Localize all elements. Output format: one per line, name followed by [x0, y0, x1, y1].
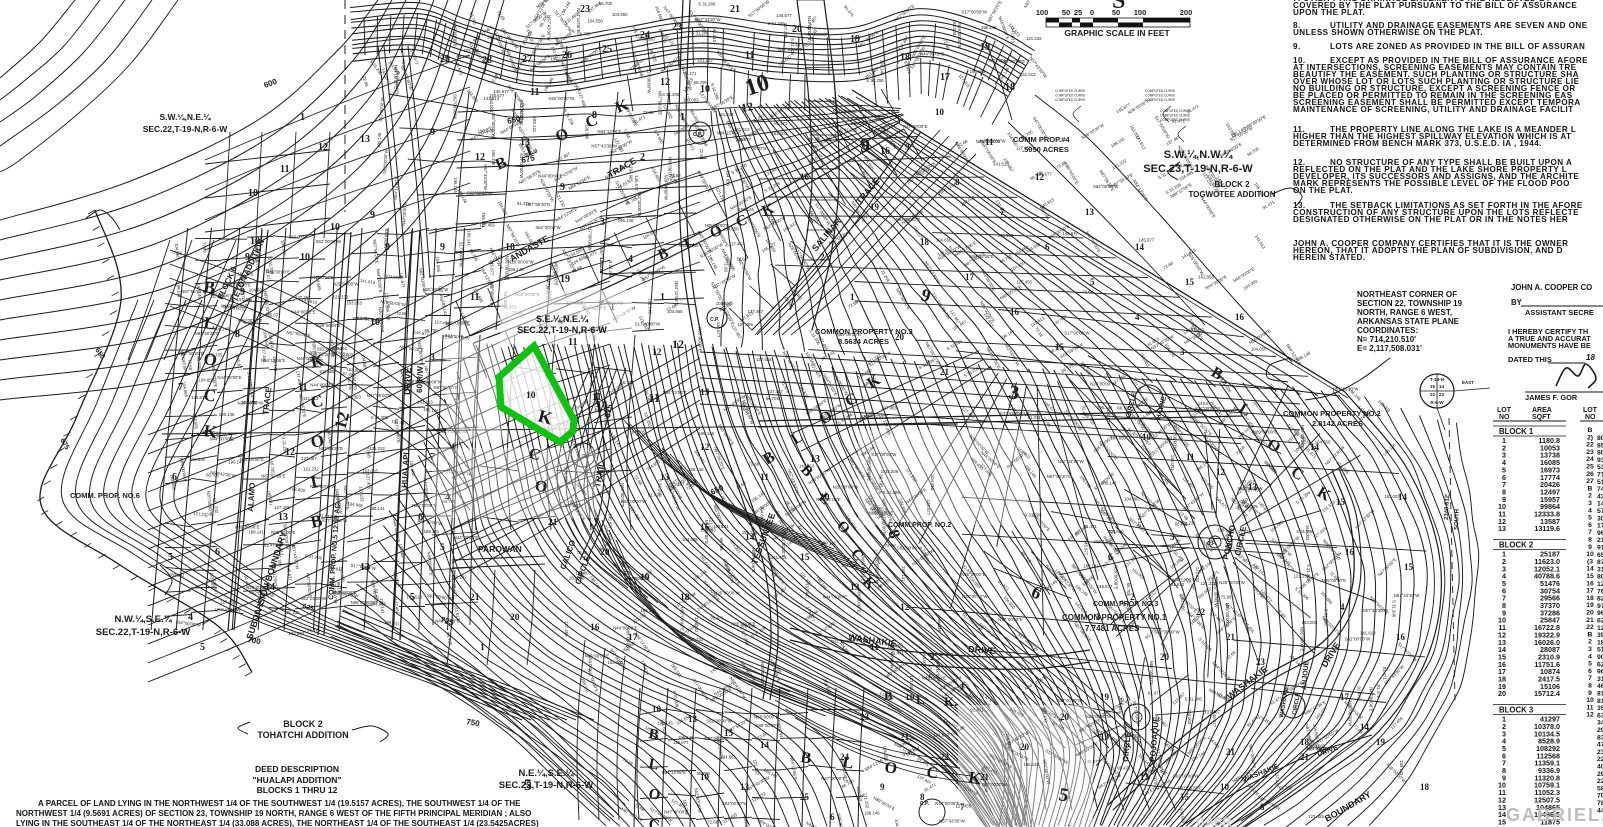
svg-text:14: 14 — [1398, 492, 1408, 502]
svg-text:S 31.206: S 31.206 — [698, 1, 716, 6]
svg-text:N47°00'00"E: N47°00'00"E — [903, 124, 928, 129]
svg-text:S62°00'00"W: S62°00'00"W — [1057, 698, 1083, 703]
svg-text:N= 714,210.510': N= 714,210.510' — [1357, 335, 1416, 344]
svg-text:145.677: 145.677 — [673, 740, 689, 745]
svg-text:9: 9 — [880, 782, 885, 792]
svg-text:N87°56'20"E: N87°56'20"E — [1178, 786, 1203, 791]
svg-text:12: 12 — [652, 348, 662, 358]
svg-text:71: 71 — [1597, 472, 1603, 479]
svg-text:N89°00'00"E: N89°00'00"E — [922, 676, 947, 681]
svg-text:N89°00'00"E: N89°00'00"E — [760, 662, 765, 687]
svg-text:3: 3 — [1588, 500, 1592, 507]
svg-text:9.: 9. — [1293, 42, 1301, 51]
svg-text:S 31.206: S 31.206 — [608, 261, 613, 279]
svg-text:N57°43'30"W: N57°43'30"W — [1058, 459, 1085, 464]
svg-text:DRIVE: DRIVE — [968, 644, 996, 656]
svg-text:163.003: 163.003 — [289, 235, 305, 240]
svg-text:104.650: 104.650 — [726, 170, 731, 186]
svg-text:LOT: LOT — [1497, 407, 1512, 414]
svg-text:9: 9 — [560, 182, 565, 193]
svg-text:SEC.23,T-19-N,R-6-W: SEC.23,T-19-N,R-6-W — [1143, 163, 1253, 175]
svg-text:21: 21 — [470, 593, 480, 603]
svg-text:S62°00'00"W: S62°00'00"W — [316, 239, 342, 244]
svg-text:57: 57 — [1597, 508, 1603, 515]
svg-text:196.146: 196.146 — [219, 412, 235, 417]
svg-text:S 31.206: S 31.206 — [883, 490, 901, 495]
svg-text:21: 21 — [1597, 537, 1603, 544]
svg-text:66.705: 66.705 — [577, 31, 591, 36]
svg-text:141.613: 141.613 — [1169, 582, 1185, 587]
svg-text:72.68: 72.68 — [707, 820, 718, 825]
svg-text:17: 17 — [1340, 692, 1350, 702]
svg-text:163.003: 163.003 — [700, 527, 716, 532]
svg-text:SQFT: SQFT — [1532, 414, 1551, 421]
svg-text:43: 43 — [1597, 493, 1603, 500]
svg-text:17: 17 — [1586, 588, 1594, 595]
svg-text:S17°00'00"W: S17°00'00"W — [962, 9, 988, 14]
svg-text:163.003: 163.003 — [575, 570, 591, 575]
svg-text:24: 24 — [1586, 456, 1594, 463]
svg-text:COMPUTED CURVE: COMPUTED CURVE — [1160, 114, 1190, 118]
svg-text:163.003: 163.003 — [346, 301, 362, 306]
svg-text:74: 74 — [1597, 486, 1603, 493]
svg-text:O: O — [202, 349, 218, 370]
svg-text:163.003: 163.003 — [489, 97, 494, 113]
svg-text:104.650: 104.650 — [887, 644, 903, 649]
svg-text:3: 3 — [1588, 646, 1592, 653]
svg-text:11: 11 — [530, 87, 539, 98]
svg-text:189.141: 189.141 — [1083, 564, 1099, 569]
svg-text:N85°00'00"E: N85°00'00"E — [961, 572, 986, 577]
svg-text:COMPUTED CURVE: COMPUTED CURVE — [1055, 94, 1085, 98]
svg-text:S62°00'00"W: S62°00'00"W — [706, 719, 732, 724]
svg-text:11: 11 — [594, 398, 610, 416]
svg-text:6: 6 — [418, 512, 423, 523]
svg-text:8: 8 — [1260, 802, 1265, 812]
svg-text:BLOCKS 1 THRU 12: BLOCKS 1 THRU 12 — [257, 785, 338, 795]
svg-text:S 31.206: S 31.206 — [1181, 593, 1186, 611]
svg-text:S17°00'00"W: S17°00'00"W — [587, 225, 592, 251]
svg-text:14: 14 — [1597, 501, 1603, 508]
svg-text:47: 47 — [1597, 742, 1603, 749]
svg-text:N87°56'20"E: N87°56'20"E — [261, 473, 286, 478]
svg-text:N47°00'00"E: N47°00'00"E — [778, 47, 803, 52]
svg-text:HUALAPI: HUALAPI — [400, 452, 411, 488]
svg-text:196.146: 196.146 — [699, 431, 715, 436]
svg-text:141.613: 141.613 — [934, 733, 950, 738]
svg-text:11: 11 — [280, 164, 289, 175]
svg-text:11: 11 — [985, 137, 994, 147]
svg-text:18: 18 — [1597, 639, 1603, 646]
svg-text:S 31.206: S 31.206 — [691, 30, 709, 35]
svg-text:76: 76 — [1597, 588, 1603, 595]
svg-text:127.455: 127.455 — [881, 406, 897, 411]
svg-text:104.665: 104.665 — [841, 563, 857, 568]
svg-text:UPON THE PLAT.: UPON THE PLAT. — [1293, 8, 1365, 17]
svg-text:S62°00'00"W: S62°00'00"W — [722, 801, 748, 806]
svg-text:19: 19 — [1586, 602, 1594, 609]
svg-text:66.705: 66.705 — [694, 80, 708, 85]
svg-text:40: 40 — [1597, 764, 1603, 771]
svg-text:N26°00'00"W: N26°00'00"W — [962, 594, 989, 599]
svg-text:N85°00'00"E: N85°00'00"E — [1322, 578, 1347, 583]
svg-text:COMPUTED CURVE: COMPUTED CURVE — [1145, 89, 1175, 93]
svg-text:11: 11 — [648, 390, 660, 405]
svg-text:S.W.¼,N.W.¼: S.W.¼,N.W.¼ — [1164, 149, 1233, 161]
svg-text:121.232: 121.232 — [369, 446, 385, 451]
svg-text:189.141: 189.141 — [248, 529, 264, 534]
svg-text:145.677: 145.677 — [1106, 409, 1111, 425]
svg-text:.5050 ACRES: .5050 ACRES — [1022, 145, 1069, 154]
svg-text:121.232: 121.232 — [1180, 520, 1196, 525]
svg-text:16: 16 — [1396, 632, 1406, 642]
svg-text:145.677: 145.677 — [926, 500, 931, 516]
svg-text:S 31.206: S 31.206 — [662, 92, 680, 97]
svg-text:N84°12'06"E: N84°12'06"E — [751, 548, 756, 573]
svg-text:AREA: AREA — [1532, 407, 1552, 414]
svg-text:66.705: 66.705 — [766, 396, 780, 401]
svg-text:104.650: 104.650 — [587, 19, 603, 24]
svg-text:S62°00'00"W: S62°00'00"W — [1093, 184, 1119, 189]
svg-text:"HUALAPI ADDITION": "HUALAPI ADDITION" — [253, 775, 342, 785]
svg-text:66.705: 66.705 — [719, 538, 724, 552]
svg-text:12: 12 — [1586, 712, 1594, 719]
svg-text:141.613: 141.613 — [993, 161, 1009, 166]
svg-text:8.5634 ACRES: 8.5634 ACRES — [838, 337, 889, 346]
svg-text:N89°00'00"E: N89°00'00"E — [856, 588, 861, 613]
svg-text:10: 10 — [370, 317, 380, 328]
svg-text:5: 5 — [1588, 515, 1592, 522]
svg-text:60 R/W: 60 R/W — [415, 366, 425, 393]
svg-text:TOGWOTEE ADDITION: TOGWOTEE ADDITION — [1188, 190, 1275, 199]
svg-text:S62°00'00"W: S62°00'00"W — [1154, 630, 1180, 635]
svg-text:25: 25 — [602, 44, 612, 55]
svg-text:N57°43'30"W: N57°43'30"W — [599, 248, 604, 275]
svg-text:16: 16 — [1010, 307, 1020, 317]
svg-text:BY: BY — [1511, 298, 1523, 307]
svg-text:196.146: 196.146 — [981, 25, 997, 30]
svg-text:121.232: 121.232 — [333, 295, 349, 300]
svg-text:13: 13 — [1498, 524, 1506, 533]
svg-text:96: 96 — [1597, 669, 1603, 676]
svg-text:1: 1 — [660, 292, 665, 303]
svg-text:72.68: 72.68 — [1221, 595, 1232, 600]
svg-text:196.146: 196.146 — [508, 267, 524, 272]
svg-text:163.003: 163.003 — [1305, 525, 1310, 541]
svg-text:12: 12 — [1597, 625, 1603, 632]
svg-text:4: 4 — [188, 612, 193, 623]
svg-text:91.471: 91.471 — [1238, 530, 1252, 535]
svg-text:S17°00'00"W: S17°00'00"W — [871, 452, 897, 457]
svg-text:196.146: 196.146 — [879, 60, 884, 76]
svg-text:127.455: 127.455 — [756, 357, 772, 362]
svg-text:23: 23 — [860, 712, 870, 722]
svg-text:163.003: 163.003 — [922, 652, 927, 668]
svg-text:104.650: 104.650 — [723, 226, 739, 231]
svg-text:11: 11 — [745, 50, 754, 61]
svg-text:8: 8 — [1588, 537, 1592, 544]
svg-text:COMPUTED CURVE: COMPUTED CURVE — [1055, 89, 1085, 93]
svg-text:72.68: 72.68 — [401, 59, 407, 70]
svg-text:N26°00'00"W: N26°00'00"W — [549, 96, 576, 101]
svg-text:N87°56'20"E: N87°56'20"E — [816, 497, 841, 502]
svg-text:15: 15 — [1055, 342, 1065, 352]
svg-text:16: 16 — [1235, 312, 1245, 322]
svg-text:137.467: 137.467 — [767, 389, 783, 394]
svg-text:10: 10 — [1586, 551, 1594, 558]
svg-text:NO: NO — [1585, 414, 1596, 421]
svg-text:15 | 14: 15 | 14 — [1430, 384, 1445, 389]
svg-text:6: 6 — [1588, 522, 1592, 529]
svg-text:21: 21 — [940, 367, 950, 377]
svg-text:(3: (3 — [1587, 558, 1593, 565]
svg-text:27: 27 — [1586, 478, 1594, 485]
svg-text:16: 16 — [1345, 547, 1355, 557]
svg-text:80: 80 — [1597, 435, 1603, 442]
svg-text:4: 4 — [1588, 653, 1592, 660]
svg-text:10: 10 — [1586, 697, 1594, 704]
svg-text:31: 31 — [1597, 566, 1603, 573]
svg-text:DATED THIS: DATED THIS — [1508, 355, 1552, 364]
svg-text:12: 12 — [1216, 467, 1226, 477]
svg-text:104.650: 104.650 — [1108, 529, 1124, 534]
svg-text:5: 5 — [1090, 277, 1095, 287]
svg-text:145.677: 145.677 — [634, 175, 639, 191]
svg-text:9: 9 — [440, 242, 445, 253]
svg-text:SECTION 22, TOWNSHIP 19: SECTION 22, TOWNSHIP 19 — [1357, 299, 1463, 308]
svg-text:137.467: 137.467 — [1188, 328, 1204, 333]
svg-text:189.141: 189.141 — [901, 566, 906, 582]
svg-text:GRAPHIC SCALE IN FEET: GRAPHIC SCALE IN FEET — [1064, 28, 1170, 38]
svg-text:21: 21 — [548, 518, 558, 528]
svg-text:15: 15 — [800, 553, 810, 563]
svg-text:N57°43'30"W: N57°43'30"W — [591, 143, 618, 148]
svg-text:N87°56'20"E: N87°56'20"E — [179, 351, 204, 356]
svg-text:LOT: LOT — [1583, 407, 1598, 414]
svg-text:N44°00'00"E: N44°00'00"E — [310, 383, 335, 388]
svg-text:12: 12 — [285, 447, 295, 458]
svg-text:S62°00'00"W: S62°00'00"W — [453, 94, 458, 120]
svg-text:16: 16 — [800, 172, 810, 182]
svg-text:39: 39 — [1597, 632, 1603, 639]
svg-text:66.705: 66.705 — [1279, 785, 1293, 790]
svg-text:20: 20 — [1586, 610, 1594, 617]
svg-text:189.141: 189.141 — [467, 230, 472, 246]
svg-text:66.705: 66.705 — [620, 380, 634, 385]
svg-text:12: 12 — [1597, 581, 1603, 588]
svg-text:N89°00'00"E: N89°00'00"E — [1149, 661, 1154, 686]
svg-text:189.141: 189.141 — [1101, 480, 1117, 485]
svg-text:C.P.: C.P. — [710, 317, 720, 323]
svg-text:137.467: 137.467 — [565, 503, 581, 508]
svg-text:8: 8 — [1588, 683, 1592, 690]
svg-text:23: 23 — [1256, 657, 1266, 667]
svg-text:S62°00'00"W: S62°00'00"W — [897, 546, 923, 551]
svg-text:137.467: 137.467 — [295, 295, 311, 300]
svg-text:145.677: 145.677 — [489, 93, 505, 98]
svg-text:145.677: 145.677 — [1097, 584, 1113, 589]
svg-text:5: 5 — [200, 642, 205, 653]
svg-text:S 31.206: S 31.206 — [1024, 512, 1042, 517]
svg-text:104.665: 104.665 — [682, 537, 698, 542]
svg-text:100: 100 — [1036, 8, 1049, 17]
svg-text:11: 11 — [1586, 704, 1593, 711]
svg-text:20: 20 — [1020, 742, 1030, 752]
svg-text:91.471: 91.471 — [1117, 766, 1131, 771]
svg-text:137.467: 137.467 — [748, 309, 764, 314]
svg-text:N57°43'30"W: N57°43'30"W — [1394, 593, 1421, 598]
svg-text:15: 15 — [1180, 792, 1190, 802]
svg-text:N44°00'00"E: N44°00'00"E — [310, 275, 335, 280]
svg-text:17: 17 — [965, 272, 975, 282]
svg-text:121.232: 121.232 — [688, 637, 704, 642]
svg-text:96: 96 — [1597, 610, 1603, 617]
svg-text:L: L — [916, 692, 925, 707]
svg-text:72.68: 72.68 — [885, 543, 896, 548]
svg-text:N.W.¼,S.E.¼: N.W.¼,S.E.¼ — [114, 614, 172, 625]
svg-text:N85°00'00"E: N85°00'00"E — [1300, 627, 1305, 652]
svg-text:137.467: 137.467 — [805, 583, 810, 599]
svg-text:N85°00'00"E: N85°00'00"E — [1114, 565, 1119, 590]
svg-text:N47°00'00"E: N47°00'00"E — [821, 776, 846, 781]
svg-text:91.471: 91.471 — [970, 707, 984, 712]
svg-text:N47°00'00"E: N47°00'00"E — [1369, 687, 1374, 712]
svg-text:196.146: 196.146 — [238, 272, 254, 277]
svg-text:N47°00'00"E: N47°00'00"E — [831, 639, 856, 644]
svg-text:13: 13 — [1085, 207, 1095, 217]
svg-text:9: 9 — [240, 287, 245, 298]
svg-text:12: 12 — [672, 337, 684, 351]
svg-text:19: 19 — [980, 42, 990, 53]
svg-text:12: 12 — [900, 603, 910, 613]
svg-text:S17°00'00"W: S17°00'00"W — [458, 242, 463, 268]
svg-text:19: 19 — [1376, 737, 1386, 747]
svg-text:141.613: 141.613 — [712, 27, 717, 43]
svg-text:2: 2 — [1588, 493, 1592, 500]
svg-text:N26°00'00"W: N26°00'00"W — [1219, 580, 1246, 585]
svg-text:127.455: 127.455 — [1122, 733, 1138, 738]
svg-text:N44°00'00"E: N44°00'00"E — [920, 51, 945, 56]
svg-text:N85°00'00"E: N85°00'00"E — [679, 607, 684, 632]
svg-text:66.705: 66.705 — [697, 771, 711, 776]
svg-text:GABR: GABR — [1196, 815, 1232, 827]
svg-text:121.232: 121.232 — [697, 58, 713, 63]
svg-text:13: 13 — [360, 134, 370, 145]
svg-text:189.141: 189.141 — [369, 506, 385, 511]
svg-text:137.467: 137.467 — [301, 456, 317, 461]
svg-text:196.146: 196.146 — [1023, 762, 1039, 767]
svg-text:2.8142 ACRES: 2.8142 ACRES — [1312, 419, 1363, 428]
svg-text:127.455: 127.455 — [909, 675, 914, 691]
svg-text:9: 9 — [905, 142, 910, 152]
svg-text:50: 50 — [1062, 8, 1070, 17]
svg-text:163.003: 163.003 — [345, 395, 361, 400]
svg-text:18: 18 — [1005, 82, 1015, 93]
svg-text:21: 21 — [1586, 617, 1594, 624]
svg-text:137.467: 137.467 — [729, 242, 745, 247]
svg-text:ASSISTANT SECRE: ASSISTANT SECRE — [1525, 308, 1594, 317]
svg-text:N47°00'00"E: N47°00'00"E — [367, 393, 392, 398]
svg-text:90: 90 — [1597, 654, 1603, 661]
svg-text:11: 11 — [568, 337, 577, 348]
svg-text:GABRIEL, INC: GABRIEL, INC — [1506, 805, 1603, 825]
svg-text:70: 70 — [1597, 793, 1603, 800]
svg-text:11: 11 — [298, 382, 307, 393]
svg-text:72.68: 72.68 — [643, 110, 654, 115]
svg-text:8: 8 — [955, 177, 960, 187]
svg-text:N87°56'20"E: N87°56'20"E — [1047, 474, 1072, 479]
svg-text:141.613: 141.613 — [1010, 27, 1015, 43]
svg-text:31: 31 — [1597, 676, 1603, 683]
svg-text:29: 29 — [1597, 771, 1603, 778]
svg-text:16: 16 — [590, 623, 600, 633]
svg-text:22: 22 — [1597, 756, 1603, 763]
svg-text:E= 2,117,508.031': E= 2,117,508.031' — [1357, 344, 1422, 353]
svg-text:NO: NO — [1499, 414, 1510, 421]
svg-text:163.003: 163.003 — [569, 575, 585, 580]
svg-text:TOHATCHI ADDITION: TOHATCHI ADDITION — [257, 730, 348, 740]
svg-text:163.003: 163.003 — [771, 131, 787, 136]
svg-text:91.471: 91.471 — [648, 492, 662, 497]
svg-text:7: 7 — [1000, 207, 1005, 217]
svg-text:N89°00'00"E: N89°00'00"E — [755, 723, 780, 728]
svg-text:104.665: 104.665 — [1124, 497, 1140, 502]
svg-text:COMM PROP.#4: COMM PROP.#4 — [1013, 135, 1070, 144]
svg-text:15: 15 — [1336, 497, 1346, 507]
svg-text:S.W.¼,N.E.¼: S.W.¼,N.E.¼ — [159, 112, 211, 122]
svg-text:22: 22 — [1586, 624, 1594, 631]
svg-text:N85°00'00"E: N85°00'00"E — [238, 318, 263, 323]
svg-text:EAST: EAST — [1462, 380, 1474, 385]
svg-text:0: 0 — [1090, 8, 1094, 17]
svg-text:23: 23 — [1586, 449, 1594, 456]
svg-text:34: 34 — [1597, 720, 1603, 727]
svg-text:BLOCK 2: BLOCK 2 — [283, 719, 323, 729]
svg-text:COMMON PROPERTY NO.2: COMMON PROPERTY NO.2 — [1283, 409, 1381, 418]
svg-text:BLOCK 3: BLOCK 3 — [1499, 706, 1534, 715]
svg-text:1: 1 — [850, 292, 855, 302]
svg-text:N85°00'00"E: N85°00'00"E — [861, 557, 866, 582]
svg-text:196.146: 196.146 — [453, 177, 458, 193]
svg-text:189.141: 189.141 — [532, 117, 537, 133]
svg-text:6: 6 — [1588, 668, 1592, 675]
svg-text:12: 12 — [660, 77, 670, 88]
svg-text:S62°00'00"W: S62°00'00"W — [467, 190, 493, 195]
svg-text:3: 3 — [1180, 347, 1185, 357]
svg-text:6: 6 — [1108, 552, 1113, 562]
svg-text:N85°00'00"E: N85°00'00"E — [866, 457, 871, 482]
svg-text:196.146: 196.146 — [688, 467, 704, 472]
svg-text:196.146: 196.146 — [648, 298, 653, 314]
svg-text:10: 10 — [300, 252, 310, 263]
svg-text:DRIVE: DRIVE — [402, 367, 413, 395]
svg-text:COMMON PROPERTY NO.3: COMMON PROPERTY NO.3 — [815, 327, 913, 336]
svg-text:N44°00'00"E: N44°00'00"E — [613, 626, 638, 631]
svg-text:163.003: 163.003 — [851, 121, 867, 126]
svg-text:COMM. PROP. NO.6: COMM. PROP. NO.6 — [70, 491, 140, 500]
svg-text:C.P.: C.P. — [693, 132, 703, 138]
svg-text:2340.612': 2340.612' — [1444, 493, 1451, 520]
svg-text:ARKANSAS STATE PLANE: ARKANSAS STATE PLANE — [1357, 317, 1460, 326]
svg-text:81: 81 — [1597, 691, 1603, 698]
svg-text:81: 81 — [1597, 698, 1603, 705]
svg-text:82: 82 — [1597, 596, 1603, 603]
svg-text:NORTH, RANGE 6 WEST,: NORTH, RANGE 6 WEST, — [1357, 308, 1452, 317]
svg-text:2: 2 — [640, 152, 645, 163]
svg-text:19: 19 — [1100, 692, 1110, 702]
svg-text:PAROWAN: PAROWAN — [478, 544, 522, 554]
svg-text:121.232: 121.232 — [1294, 573, 1310, 578]
